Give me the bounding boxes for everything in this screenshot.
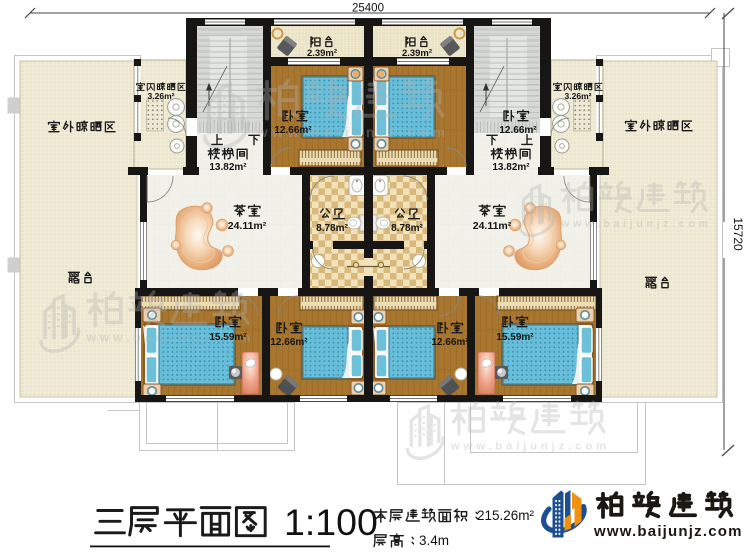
svg-text:www.baijunjz.com: www.baijunjz.com: [450, 440, 610, 452]
svg-text:3.26m²: 3.26m²: [148, 91, 175, 101]
svg-text:13.82m²: 13.82m²: [209, 162, 247, 173]
svg-text:www.baijunjz.com: www.baijunjz.com: [593, 523, 743, 540]
svg-text:3.4m: 3.4m: [419, 533, 449, 548]
svg-text:www.baijunjz.com: www.baijunjz.com: [560, 218, 712, 230]
svg-text:2.39m²: 2.39m²: [307, 48, 337, 59]
svg-text:2.39m²: 2.39m²: [402, 48, 432, 59]
svg-text:8.78m²: 8.78m²: [316, 223, 348, 234]
svg-text:215.26m²: 215.26m²: [477, 508, 535, 523]
svg-text:15720: 15720: [731, 217, 745, 251]
svg-text:24.11m²: 24.11m²: [473, 220, 512, 232]
svg-text:15.59m²: 15.59m²: [209, 332, 247, 343]
svg-text:1:100: 1:100: [284, 501, 378, 543]
svg-text:15.59m²: 15.59m²: [496, 332, 534, 343]
svg-text:13.82m²: 13.82m²: [492, 162, 530, 173]
svg-text:3.26m²: 3.26m²: [565, 91, 592, 101]
svg-text:8.78m²: 8.78m²: [391, 223, 423, 234]
svg-text:12.66m²: 12.66m²: [499, 125, 537, 136]
svg-text:24.11m²: 24.11m²: [228, 220, 267, 232]
svg-text:12.66m²: 12.66m²: [431, 337, 469, 348]
svg-text:12.66m²: 12.66m²: [274, 125, 312, 136]
svg-text:12.66m²: 12.66m²: [270, 337, 308, 348]
svg-text:25400: 25400: [352, 3, 384, 15]
